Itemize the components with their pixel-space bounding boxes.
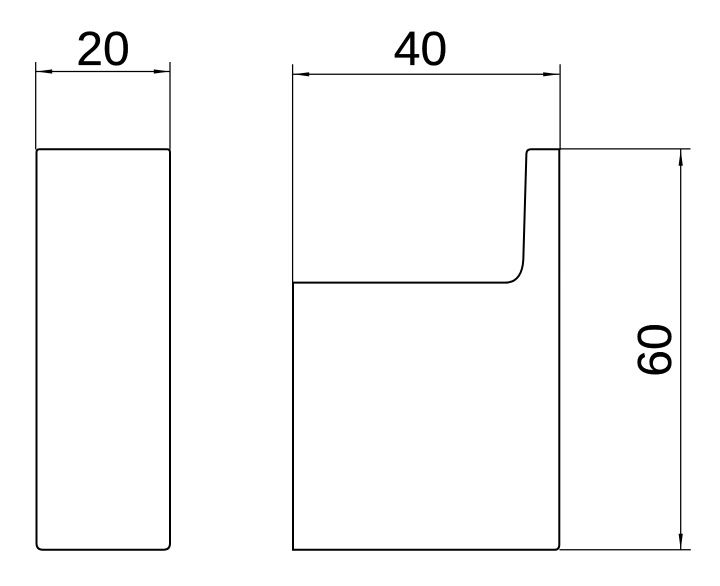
svg-text:20: 20 [76,23,129,76]
svg-text:60: 60 [629,323,682,376]
svg-text:40: 40 [394,23,447,76]
